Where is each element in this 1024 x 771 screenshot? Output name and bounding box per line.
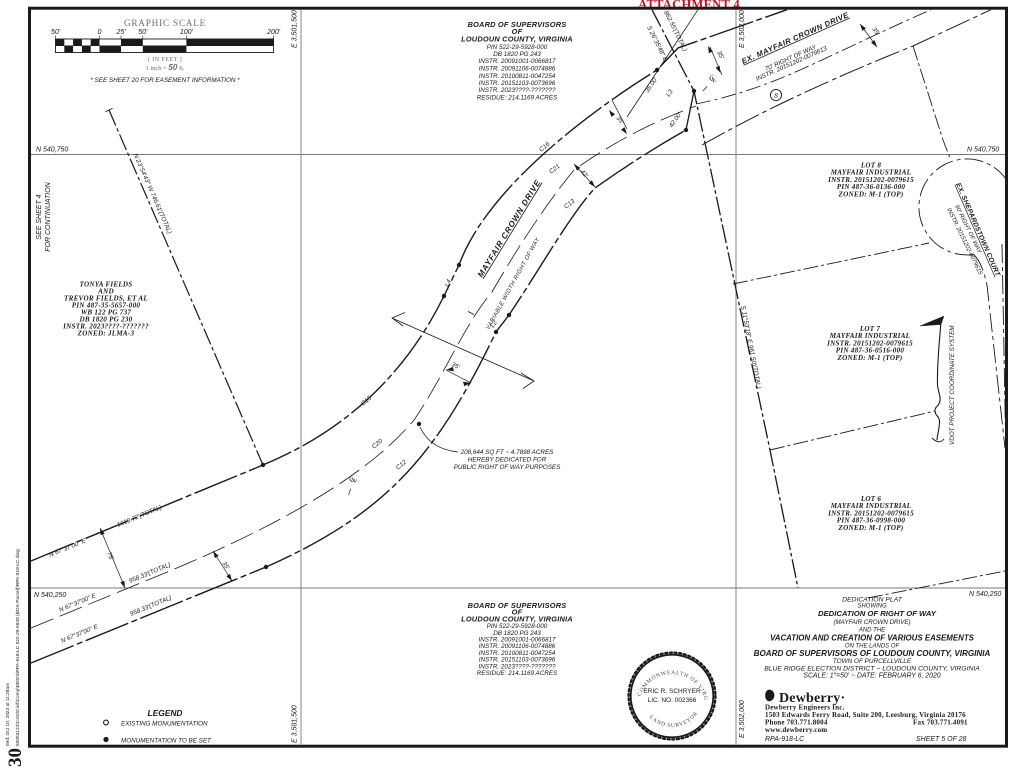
svg-text:PIN 522-29-5928-000: PIN 522-29-5928-000: [487, 44, 548, 51]
svg-text:HEREBY DEDICATED FOR: HEREBY DEDICATED FOR: [468, 457, 547, 464]
svg-text:INSTR. 20100811-0047254: INSTR. 20100811-0047254: [479, 73, 556, 80]
svg-text:( IN FEET ): ( IN FEET ): [148, 56, 183, 63]
svg-text:FOR CONTINUATION: FOR CONTINUATION: [45, 181, 52, 251]
svg-text:50': 50': [51, 29, 61, 36]
svg-text:25': 25': [115, 29, 126, 36]
svg-text:VDOT PROJECT COORDINATE SYSTEM: VDOT PROJECT COORDINATE SYSTEM: [949, 325, 956, 445]
svg-text:EXISTING MONUMENTATION: EXISTING MONUMENTATION: [121, 721, 208, 728]
svg-text:200': 200': [266, 29, 281, 36]
svg-text:RESIDUE: 214.1169 ACRES: RESIDUE: 214.1169 ACRES: [477, 670, 558, 677]
svg-text:INSTR. 20151103-0073696: INSTR. 20151103-0073696: [479, 80, 556, 87]
svg-text:VACATION AND CREATION OF VARIO: VACATION AND CREATION OF VARIOUS EASEMEN…: [770, 634, 975, 643]
svg-text:208,644 SQ FT ~ 4.7898 ACRES: 208,644 SQ FT ~ 4.7898 ACRES: [460, 449, 554, 456]
svg-text:* SEE SHEET 20 FOR EASEMENT IN: * SEE SHEET 20 FOR EASEMENT INFORMATION …: [90, 77, 240, 84]
svg-text:INSTR. 2023????-???????: INSTR. 2023????-???????: [478, 87, 556, 94]
svg-text:RPA-918-LC: RPA-918-LC: [765, 736, 805, 743]
svg-text:TOWN OF PURCELLVILLE: TOWN OF PURCELLVILLE: [833, 658, 912, 665]
svg-text:MONUMENTATION TO BE SET: MONUMENTATION TO BE SET: [121, 738, 212, 745]
svg-text:1 inch = 50 ft.: 1 inch = 50 ft.: [145, 63, 184, 72]
svg-text:Fax 703.771.4091: Fax 703.771.4091: [913, 719, 968, 727]
svg-text:E 3,501,500: E 3,501,500: [292, 10, 299, 48]
svg-text:BOARD OF SUPERVISORS OF LOUDOU: BOARD OF SUPERVISORS OF LOUDOUN COUNTY, …: [754, 649, 991, 658]
svg-text:DEDICATION OF RIGHT OF WAY: DEDICATION OF RIGHT OF WAY: [818, 609, 937, 618]
svg-text:SCALE: 1″=50′ ~ DATE: FEBRUARY: SCALE: 1″=50′ ~ DATE: FEBRUARY 6, 2020: [803, 673, 940, 680]
svg-text:www.dewberry.com: www.dewberry.com: [765, 726, 827, 734]
svg-text:100': 100': [180, 29, 194, 36]
svg-text:SEE SHEET 4: SEE SHEET 4: [36, 194, 43, 239]
svg-text:INSTR. 20091001-0066817: INSTR. 20091001-0066817: [478, 58, 556, 65]
svg-text:50': 50': [138, 29, 148, 36]
svg-text:N 540,750: N 540,750: [967, 147, 999, 154]
svg-text:INSTR. 20091106-0074886: INSTR. 20091106-0074886: [479, 66, 556, 73]
svg-text:(MAYFAIR CROWN DRIVE): (MAYFAIR CROWN DRIVE): [833, 619, 910, 626]
svg-text:LIC. NO. 002366: LIC. NO. 002366: [648, 697, 697, 704]
svg-text:ATTACHMENT 4: ATTACHMENT 4: [638, 0, 740, 12]
svg-text:LOUDOUN COUNTY, VIRGINIA: LOUDOUN COUNTY, VIRGINIA: [461, 614, 573, 623]
svg-text:N 540,750: N 540,750: [36, 147, 68, 154]
svg-text:E 3,502,000: E 3,502,000: [739, 700, 746, 738]
svg-text:30: 30: [5, 748, 26, 767]
svg-text:E 3,502,000: E 3,502,000: [739, 10, 746, 48]
svg-text:N 540,250: N 540,250: [969, 591, 1001, 598]
svg-text:50053124\CAD\Civil\Comp\DED's\: 50053124\CAD\Civil\Comp\DED's\RPA-918-LC…: [15, 549, 21, 746]
svg-text:RESIDUE: 214.1169 ACRES: RESIDUE: 214.1169 ACRES: [477, 95, 558, 102]
svg-text:ZONED: M-1 (TOP): ZONED: M-1 (TOP): [837, 354, 903, 362]
svg-text:E 3,501,500: E 3,501,500: [292, 705, 299, 743]
svg-text:8: 8: [774, 92, 778, 100]
svg-text:PUBLIC RIGHT OF WAY PURPOSES: PUBLIC RIGHT OF WAY PURPOSES: [454, 464, 561, 471]
svg-text:ZONED: M-1 (TOP): ZONED: M-1 (TOP): [838, 524, 904, 532]
svg-text:DEDICATION PLAT: DEDICATION PLAT: [842, 597, 903, 604]
svg-text:0: 0: [98, 29, 102, 36]
svg-text:DB 1820 PG 243: DB 1820 PG 243: [493, 51, 541, 58]
svg-text:ZONED: M-1 (TOP): ZONED: M-1 (TOP): [838, 190, 904, 198]
svg-text:BLUE RIDGE ELECTION DISTRICT ~: BLUE RIDGE ELECTION DISTRICT ~ LOUDOUN C…: [764, 666, 980, 673]
svg-text:tted: Oct 10, 2023 at 11:28am: tted: Oct 10, 2023 at 11:28am: [5, 683, 11, 746]
svg-text:SHEET 5 OF 28: SHEET 5 OF 28: [916, 736, 967, 743]
svg-text:LOUDOUN COUNTY, VIRGINIA: LOUDOUN COUNTY, VIRGINIA: [461, 35, 573, 44]
svg-text:ERIC R. SCHRYER: ERIC R. SCHRYER: [643, 688, 701, 695]
svg-text:GRAPHIC SCALE: GRAPHIC SCALE: [124, 18, 206, 28]
svg-text:N 540,250: N 540,250: [34, 592, 66, 599]
svg-text:ZONED: JLMA-3: ZONED: JLMA-3: [77, 330, 135, 338]
svg-text:LEGEND: LEGEND: [148, 708, 183, 718]
